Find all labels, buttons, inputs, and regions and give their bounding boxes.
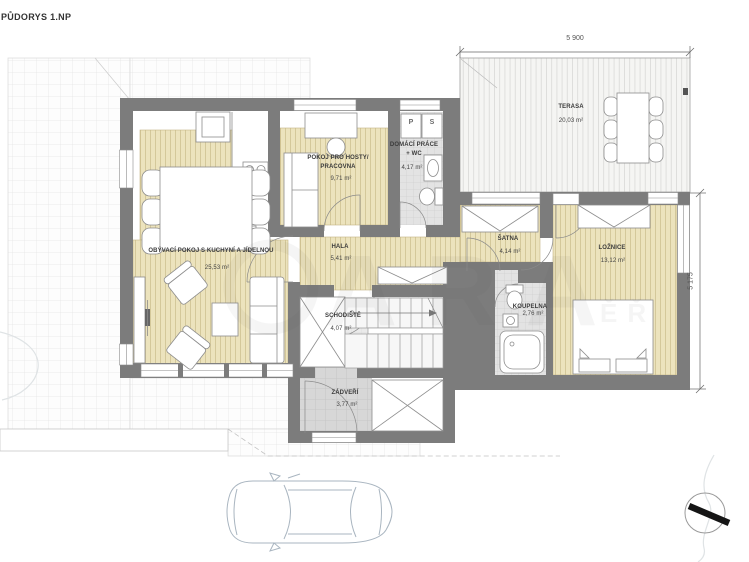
car-front-line	[234, 489, 237, 535]
terrace-door-mark	[683, 88, 688, 95]
terrace-chair	[604, 143, 618, 162]
svg-text:ĚŘ: ĚŘ	[600, 298, 656, 328]
room-label-schodiste: SCHODIŠTĚ	[325, 313, 361, 319]
closet-vestibule	[372, 380, 443, 431]
utility-sink	[424, 155, 442, 181]
car-windshield	[284, 485, 291, 539]
terrace-chair	[604, 97, 618, 116]
dining-set	[142, 167, 270, 254]
terrace-dining-set	[604, 93, 663, 163]
room-area-zadveri: 3,77 m²	[336, 402, 357, 408]
desk	[305, 113, 357, 138]
room-area-koupelna: 2,76 m²	[522, 311, 543, 317]
dimension-right	[690, 189, 706, 393]
room-area-loznice: 13,12 m²	[601, 258, 625, 264]
guest-daybed	[284, 153, 318, 227]
car-trunk-line	[379, 489, 382, 535]
window	[400, 100, 440, 110]
drawing-title: PŮDORYS 1.NP	[1, 12, 71, 22]
terrace-chair	[649, 120, 663, 139]
window	[472, 193, 540, 205]
room-area-hala: 5,41 m²	[330, 256, 351, 262]
washer-label: P	[409, 119, 414, 126]
room-area-satna: 4,14 m²	[499, 249, 520, 255]
room-label-hala: HALA	[331, 244, 348, 250]
room-label-domaci: DOMÁCÍ PRÁCE	[390, 142, 438, 148]
window	[678, 205, 690, 273]
room-label-pokoj: POKOJ PRO HOSTY/	[307, 155, 368, 161]
paved-walkway	[0, 429, 228, 451]
wardrobe-loznice	[578, 205, 650, 228]
terrace	[460, 58, 690, 192]
room-label-satna: ŠATNA	[498, 236, 519, 242]
room-label-zadveri: ZÁDVEŘÍ	[331, 390, 358, 396]
car-rear-window	[351, 487, 357, 537]
dryer-label: S	[430, 119, 435, 126]
terrace-door-opening	[553, 194, 579, 205]
dimension-label-right: 5 175	[688, 272, 695, 290]
car-mirror	[270, 543, 280, 551]
window	[120, 150, 134, 188]
terrace-chair	[604, 120, 618, 139]
kitchen-sink	[196, 112, 230, 142]
wardrobe-satna	[462, 206, 538, 232]
window	[648, 193, 678, 205]
dining-table	[160, 167, 252, 250]
dimension-top	[456, 46, 694, 58]
car-wiper	[288, 474, 300, 478]
car-mirror	[270, 473, 280, 481]
window	[120, 344, 134, 365]
floor-plan-canvas: ARA ĚŘ PŮDORYS 1.NP OBÝVACÍ POKOJ S KUCH…	[0, 0, 749, 562]
room-label-koupelna: KOUPELNA	[513, 304, 547, 310]
window-glazing-band	[141, 364, 293, 377]
room-label-terasa: TERASA	[558, 104, 583, 110]
dimension-label-top: 5 900	[566, 35, 584, 42]
floor-plan-drawing: ARA ĚŘ	[0, 0, 749, 562]
terrace-table	[617, 93, 649, 163]
room-area-terasa: 20,03 m²	[559, 118, 583, 124]
svg-text:ARA: ARA	[325, 235, 626, 347]
room-area-domaci: 4,17 m²	[401, 165, 422, 171]
terrace-chair	[649, 97, 663, 116]
utility-toilet	[420, 188, 444, 205]
window	[294, 100, 356, 111]
pillow	[579, 359, 610, 372]
room-area-pokoj: 9,71 m²	[330, 176, 351, 182]
room-area-obyvaci: 25,53 m²	[205, 265, 229, 271]
entrance-door-opening	[312, 433, 356, 443]
room-label-domaci-2: + WC	[406, 151, 422, 157]
room-label-loznice: LOŽNICE	[598, 245, 625, 251]
room-label-obyvaci: OBÝVACÍ POKOJ S KUCHYNÍ A JÍDELNOU	[148, 248, 273, 254]
room-label-pokoj-2: PRACOVNA	[320, 164, 355, 170]
pillow	[616, 359, 647, 372]
terrace-chair	[649, 143, 663, 162]
room-area-schodiste: 4,07 m²	[330, 326, 351, 332]
car-top-view	[227, 473, 392, 551]
